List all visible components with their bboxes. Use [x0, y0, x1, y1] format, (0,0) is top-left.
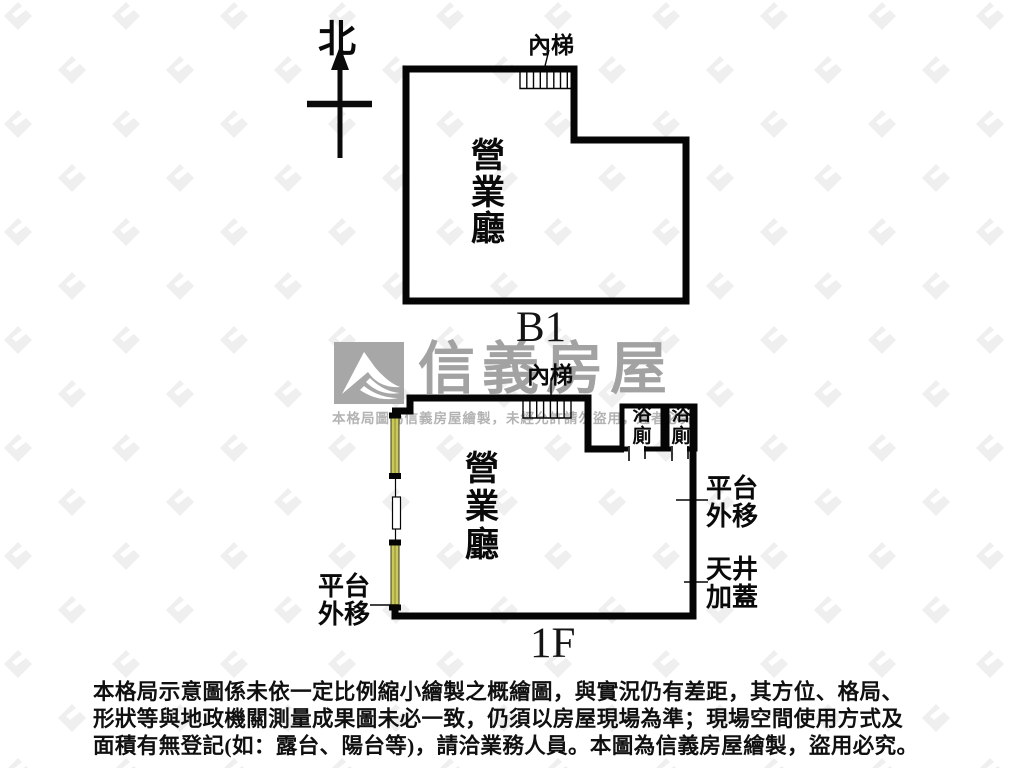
b1-floor-label: B1 [516, 303, 566, 352]
labels-layer: 北 內梯 營業廳 B1 內梯 營業廳 1F 浴廁 浴廁 平台 外移 平台 外移 … [0, 0, 1024, 768]
f1-room-label: 營業廳 [463, 451, 501, 565]
f1-stairs-label: 內梯 [527, 356, 573, 390]
right-platform-annotation: 平台 外移 [706, 475, 758, 530]
disclaimer-line: 本格局示意圖係未依一定比例縮小繪製之概繪圖，與實況仍有差距，其方位、格局、 [93, 679, 953, 706]
bathroom-2-label: 浴廁 [670, 404, 692, 447]
skylight-annotation: 天井 加蓋 [706, 556, 758, 611]
bathroom-1-label: 浴廁 [631, 404, 653, 447]
disclaimer-line: 面積有無登記(如：露台、陽台等)，請洽業務人員。本圖為信義房屋繪製，盜用必究。 [93, 733, 953, 760]
disclaimer-text: 本格局示意圖係未依一定比例縮小繪製之概繪圖，與實況仍有差距，其方位、格局、 形狀… [93, 679, 953, 760]
disclaimer-line: 形狀等與地政機關測量成果圖未必一致，仍須以房屋現場為準；現場空間使用方式及 [93, 706, 953, 733]
floor-plan-page: 信義房屋 本格局圖為信義房屋繪製，未經允許請勿盜用，違者必究 [0, 0, 1024, 768]
left-platform-annotation: 平台 外移 [318, 573, 370, 628]
f1-floor-label: 1F [530, 619, 575, 668]
b1-stairs-label: 內梯 [528, 26, 574, 60]
north-label: 北 [318, 8, 356, 63]
b1-room-label: 營業廳 [469, 139, 507, 249]
